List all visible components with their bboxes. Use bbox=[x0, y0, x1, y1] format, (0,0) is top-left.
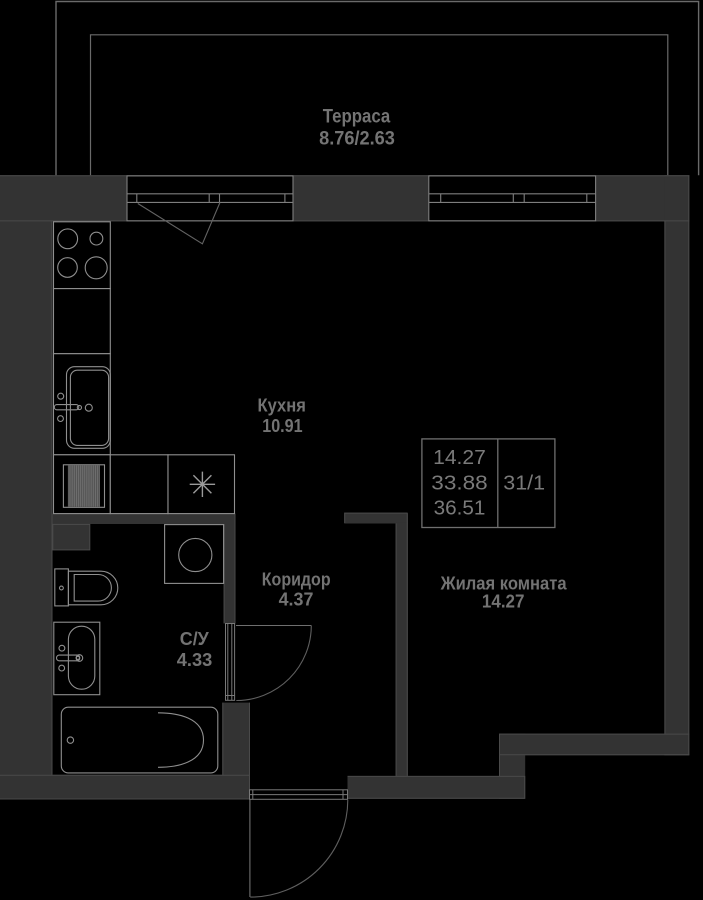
svg-text:С/У: С/У bbox=[180, 629, 210, 649]
svg-text:33.88: 33.88 bbox=[431, 471, 487, 494]
svg-text:10.91: 10.91 bbox=[262, 416, 302, 436]
svg-text:14.27: 14.27 bbox=[482, 591, 525, 611]
svg-text:4.37: 4.37 bbox=[279, 590, 314, 610]
svg-text:Терраса: Терраса bbox=[323, 106, 391, 128]
svg-text:4.33: 4.33 bbox=[177, 650, 213, 670]
svg-text:8.76/2.63: 8.76/2.63 bbox=[319, 128, 395, 150]
svg-text:31/1: 31/1 bbox=[503, 471, 545, 494]
svg-text:14.27: 14.27 bbox=[433, 446, 486, 469]
svg-text:36.51: 36.51 bbox=[434, 497, 486, 520]
svg-text:Коридор: Коридор bbox=[262, 570, 331, 590]
svg-text:Кухня: Кухня bbox=[258, 395, 306, 415]
